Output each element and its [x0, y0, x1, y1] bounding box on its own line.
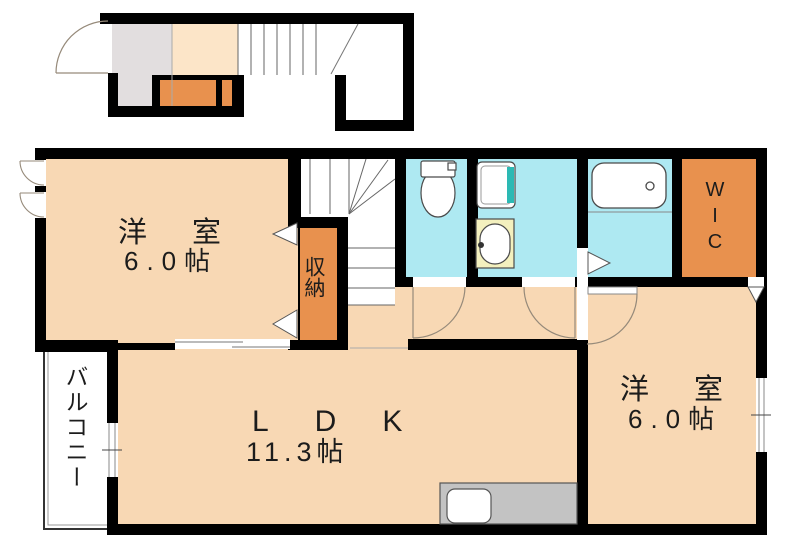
window-balcony-sliding — [107, 423, 118, 477]
window-casement-2 — [35, 192, 46, 218]
wall-segment — [108, 106, 164, 117]
wall-segment — [335, 75, 346, 125]
balcony-label: バルコニー — [63, 365, 86, 490]
window-casement-1 — [35, 160, 46, 186]
entry-hall-floor — [172, 24, 238, 75]
door-opening-bath-col — [577, 277, 588, 287]
wall-closet-bottom — [288, 340, 348, 350]
sliding-door-bedroom1-ldk — [175, 339, 290, 349]
door-opening-washroom — [522, 277, 575, 287]
washroom-floor — [478, 159, 577, 277]
bedroom1-size: 6.0帖 — [124, 248, 218, 274]
door-opening-wic — [748, 277, 764, 287]
toilet-room-floor — [406, 159, 467, 277]
door-opening-toilet — [413, 277, 466, 287]
ldk-name: LDK — [252, 407, 448, 437]
wall-segment — [403, 13, 414, 131]
wall-hall-ldk — [408, 339, 588, 350]
stairs-lower-run — [348, 217, 395, 305]
bedroom2-name: 洋室 — [620, 376, 768, 405]
wall-segment — [335, 120, 414, 131]
floor-plan: 洋室 6.0帖 洋室 6.0帖 LDK 11.3帖 収納 WIC バルコニー — [0, 0, 800, 549]
bedroom2-size: 6.0帖 — [628, 406, 722, 432]
ldk-size: 11.3帖 — [246, 439, 349, 466]
wall-outer-right — [756, 148, 767, 535]
wall-segment — [100, 13, 414, 24]
wall-toilet-left — [395, 148, 406, 287]
entry-stair-treads — [238, 24, 358, 75]
wall-toilet-washroom — [467, 148, 478, 287]
wic-label: WIC — [705, 179, 725, 257]
wall-washroom-bath — [577, 148, 588, 248]
wall-outer-bottom — [107, 524, 767, 535]
shoe-cabinet — [160, 80, 216, 106]
stairs-upper-run — [301, 159, 395, 217]
door-opening-bath — [577, 248, 588, 277]
bedroom1-name: 洋室 — [118, 219, 266, 248]
wall-bedroom1-bottom — [118, 343, 175, 350]
wall-segment — [35, 340, 118, 352]
wall-closet-left — [298, 228, 300, 340]
shoe-cabinet — [222, 80, 232, 106]
wall-closet-right — [337, 217, 348, 350]
wall-ldk-bedroom2 — [577, 340, 588, 524]
closet-label: 収納 — [303, 256, 324, 298]
wall-bath-wic — [672, 148, 682, 287]
door-opening-bedroom2 — [577, 287, 588, 340]
entry-door-swing — [56, 21, 108, 73]
wall-stairs-left — [288, 148, 301, 228]
bathroom-floor — [588, 159, 672, 277]
